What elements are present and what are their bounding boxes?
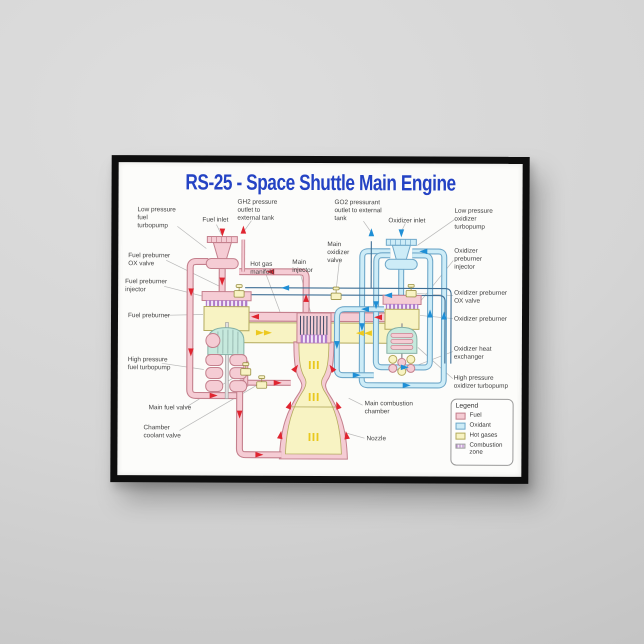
label-nozzle: Nozzle: [366, 435, 406, 443]
label-oxidizer-preburner-injector: Oxidizer preburner injector: [454, 248, 488, 272]
legend-box: Legend Fuel Oxidant Hot gases Combustion…: [450, 399, 513, 466]
legend-label-oxidant: Oxidant: [470, 422, 491, 429]
label-fuel-preburner: Fuel preburner: [128, 312, 188, 320]
legend-label-hot-gases: Hot gases: [469, 432, 497, 439]
legend-item-hot-gases: Hot gases: [455, 432, 508, 440]
label-main-injector: Main injector: [292, 259, 318, 275]
label-oxidizer-preburner-ox-valve: Oxidizer preburner OX valve: [454, 290, 514, 306]
label-fuel-preburner-ox-valve: Fuel preburner OX valve: [128, 252, 176, 268]
label-high-pressure-oxidizer-turbopump: High pressure oxidizer turbopump: [454, 375, 514, 391]
label-chamber-coolant-valve: Chamber coolant valve: [143, 424, 187, 440]
oxidizer-preburner-assembly: [383, 295, 421, 375]
poster-canvas: RS-25 - Space Shuttle Main Engine: [117, 162, 522, 477]
legend-swatch-combustion-zone: [455, 443, 465, 448]
legend-item-oxidant: Oxidant: [456, 422, 509, 430]
label-main-combustion-chamber: Main combustion chamber: [365, 400, 421, 416]
label-oxidizer-heat-exchanger: Oxidizer heat exchanger: [454, 346, 500, 362]
legend-label-fuel: Fuel: [470, 412, 482, 419]
legend-item-combustion-zone: Combustion zone: [455, 442, 508, 456]
fuel-preburner-assembly: [202, 291, 251, 398]
legend-swatch-fuel: [456, 412, 466, 419]
label-hot-gas-manifold: Hot gas manifold: [250, 261, 280, 277]
label-high-pressure-fuel-turbopump: High pressure fuel turbopump: [128, 356, 176, 372]
legend-swatch-oxidant: [456, 422, 466, 429]
label-oxidizer-preburner: Oxidizer preburner: [454, 316, 516, 324]
label-main-oxidizer-valve: Main oxidizer valve: [327, 241, 355, 265]
low-pressure-fuel-turbopump-symbol: [206, 237, 238, 269]
engine-diagram: RS-25 - Space Shuttle Main Engine: [119, 164, 520, 475]
label-gh2-outlet: GH2 pressure outlet to external tank: [237, 199, 279, 223]
label-go2-outlet: GO2 pressurant outlet to external tank: [334, 199, 388, 223]
legend-label-combustion-zone: Combustion zone: [469, 442, 508, 456]
label-oxidizer-inlet: Oxidizer inlet: [388, 217, 438, 225]
legend-item-fuel: Fuel: [456, 412, 509, 420]
label-main-fuel-valve: Main fuel valve: [149, 404, 209, 412]
legend-swatch-hot-gases: [455, 432, 465, 439]
label-low-pressure-oxidizer-turbopump: Low pressure oxidizer turbopump: [454, 208, 494, 232]
label-low-pressure-fuel-turbopump: Low pressure fuel turbopump: [137, 206, 177, 230]
wall: { "poster": { "title": "RS-25 - Space Sh…: [0, 0, 644, 644]
label-fuel-preburner-injector: Fuel preburner injector: [125, 278, 173, 294]
legend-title: Legend: [456, 403, 509, 410]
main-injector-symbol: [297, 313, 331, 343]
picture-frame: RS-25 - Space Shuttle Main Engine: [110, 155, 529, 484]
